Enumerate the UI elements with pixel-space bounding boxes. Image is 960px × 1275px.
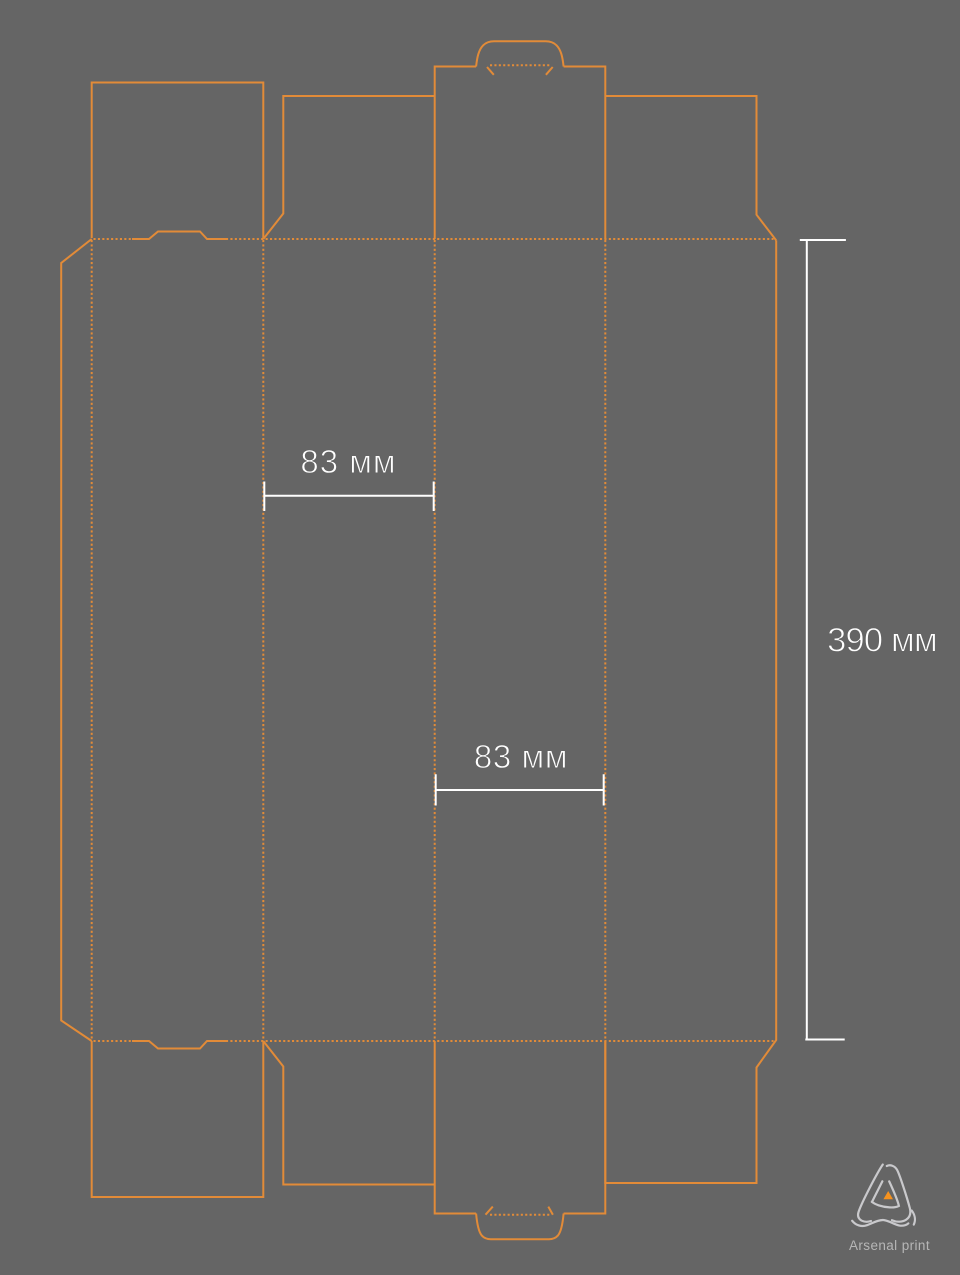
svg-text:83 мм: 83 мм — [474, 738, 568, 775]
svg-text:83 мм: 83 мм — [300, 443, 396, 480]
svg-text:390 мм: 390 мм — [827, 622, 937, 660]
svg-text:Arsenal print: Arsenal print — [849, 1238, 930, 1253]
